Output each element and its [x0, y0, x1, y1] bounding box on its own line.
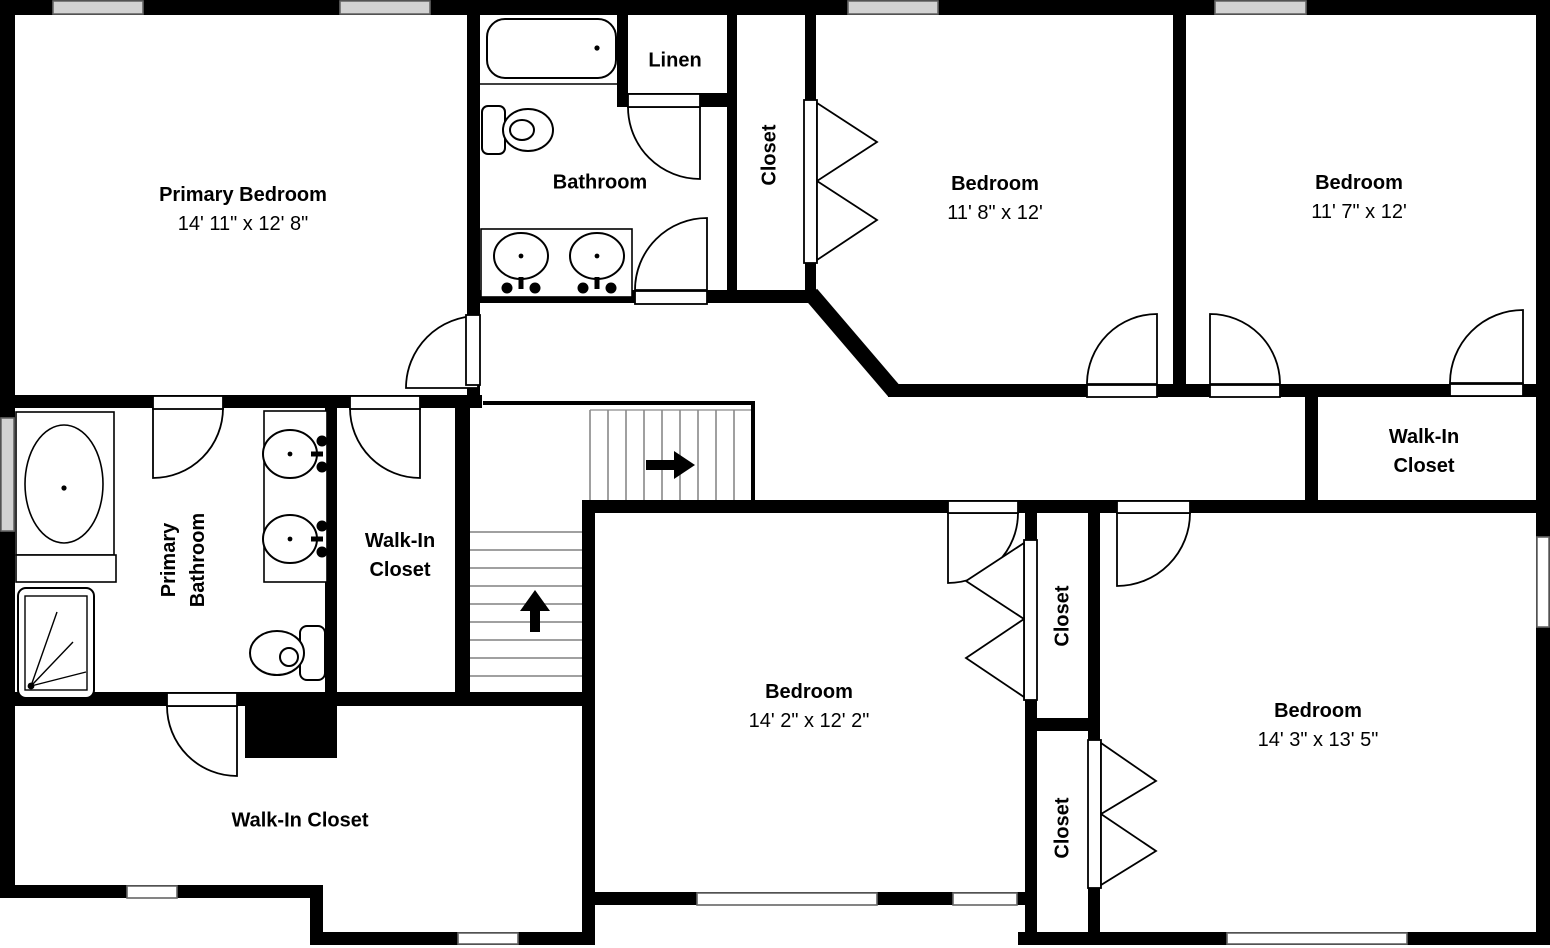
room-label-primary-bedroom: Primary Bedroom 14' 11" x 12' 8" — [159, 181, 327, 239]
window — [1215, 1, 1306, 14]
wall — [1536, 0, 1550, 945]
room-name: Primary Bedroom — [159, 181, 327, 210]
door-panel — [350, 396, 420, 409]
fixtures — [16, 19, 632, 698]
room-label-closet-top: Closet — [756, 124, 785, 185]
window — [697, 893, 877, 905]
chase — [245, 700, 337, 758]
toilet-icon — [482, 106, 553, 154]
door-panel — [1450, 384, 1523, 396]
door-panel — [167, 693, 237, 706]
room-dimensions: 11' 7" x 12' — [1311, 198, 1407, 227]
room-label-walk-in-closet-middle: Walk-In Closet — [342, 527, 458, 585]
room-dimensions: 14' 3" x 13' 5" — [1258, 726, 1379, 755]
room-name: Linen — [648, 47, 701, 76]
room-label-bedroom-bottom-middle: Bedroom 14' 2" x 12' 2" — [749, 678, 870, 736]
room-name: Walk-In Closet — [342, 527, 458, 585]
room-label-bedroom-top-right: Bedroom 11' 7" x 12' — [1311, 169, 1407, 227]
room-label-walk-in-closet-bottom: Walk-In Closet — [231, 807, 368, 836]
wall — [727, 0, 737, 303]
wall — [0, 0, 1550, 15]
wall — [582, 500, 1550, 513]
door-swing — [167, 706, 237, 776]
window — [1537, 537, 1549, 627]
stair-arrow-up-icon — [520, 590, 550, 632]
window — [848, 1, 938, 14]
room-name: Closet — [1049, 585, 1078, 646]
double-sink-vanity-icon — [481, 229, 632, 297]
bifold-door-track — [1088, 740, 1101, 888]
door-panel — [628, 94, 700, 107]
room-label-walk-in-closet-right: Walk-In Closet — [1366, 423, 1482, 481]
door-panel — [1210, 385, 1280, 397]
room-dimensions: 14' 11" x 12' 8" — [159, 210, 327, 239]
room-label-primary-bathroom: Primary Bathroom — [155, 508, 213, 612]
door-panel — [1117, 501, 1190, 513]
floor-plan: Primary Bedroom 14' 11" x 12' 8" Bathroo… — [0, 0, 1550, 948]
room-label-closet-bottom: Closet — [1049, 797, 1078, 858]
door-panel — [1087, 385, 1157, 397]
window — [127, 886, 177, 898]
bifold-door-track — [804, 100, 817, 263]
bifold-door-panel — [817, 103, 877, 181]
room-label-linen: Linen — [648, 47, 701, 76]
bifold-door-panel — [966, 619, 1024, 697]
wall — [1305, 393, 1318, 513]
window — [953, 893, 1017, 905]
room-label-bedroom-top-middle: Bedroom 11' 8" x 12' — [947, 170, 1043, 228]
door-swing — [1450, 310, 1523, 383]
stair-arrow-right-icon — [646, 451, 695, 479]
door-swing — [635, 218, 707, 290]
door-panel — [948, 501, 1018, 513]
shower-icon — [18, 588, 94, 698]
stair-railing — [483, 401, 755, 513]
room-label-bedroom-bottom-right: Bedroom 14' 3" x 13' 5" — [1258, 697, 1379, 755]
door-swing — [1210, 314, 1280, 384]
garden-tub-icon — [16, 412, 116, 582]
door-panel — [466, 315, 480, 385]
wall — [310, 932, 595, 945]
diagonal-wall — [811, 294, 894, 391]
door-swing — [153, 408, 223, 478]
wall — [582, 510, 595, 945]
bifold-door-panel — [1101, 814, 1156, 885]
room-dimensions: 14' 2" x 12' 2" — [749, 707, 870, 736]
door-swing — [1117, 513, 1190, 586]
room-name: Primary Bathroom — [155, 508, 213, 612]
room-name: Closet — [756, 124, 785, 185]
wall — [617, 0, 628, 100]
wall — [310, 885, 323, 945]
bifold-door-track — [1024, 540, 1037, 700]
bifold-door-panel — [817, 181, 877, 260]
room-name: Bedroom — [749, 678, 870, 707]
room-name: Bedroom — [1311, 169, 1407, 198]
room-name: Bedroom — [1258, 697, 1379, 726]
window — [340, 1, 430, 14]
door-swing — [350, 408, 420, 478]
door-panel — [153, 396, 223, 409]
bathtub-icon — [480, 19, 617, 84]
room-name: Bedroom — [947, 170, 1043, 199]
room-label-closet-middle: Closet — [1049, 585, 1078, 646]
wall — [1173, 0, 1186, 390]
double-sink-vanity-icon — [263, 411, 328, 582]
room-name: Walk-In Closet — [1366, 423, 1482, 481]
toilet-icon — [250, 626, 325, 680]
window — [1, 418, 14, 531]
room-name: Walk-In Closet — [231, 807, 368, 836]
window — [458, 933, 518, 944]
staircase — [470, 401, 755, 676]
stair-treads — [470, 410, 734, 676]
room-dimensions: 11' 8" x 12' — [947, 199, 1043, 228]
room-name: Bathroom — [553, 169, 647, 198]
room-name: Closet — [1049, 797, 1078, 858]
door-swing — [1087, 314, 1157, 384]
window — [1227, 933, 1407, 944]
bifold-door-panel — [1101, 743, 1156, 814]
door-panel — [635, 291, 707, 304]
room-label-bathroom: Bathroom — [553, 169, 647, 198]
window — [53, 1, 143, 14]
